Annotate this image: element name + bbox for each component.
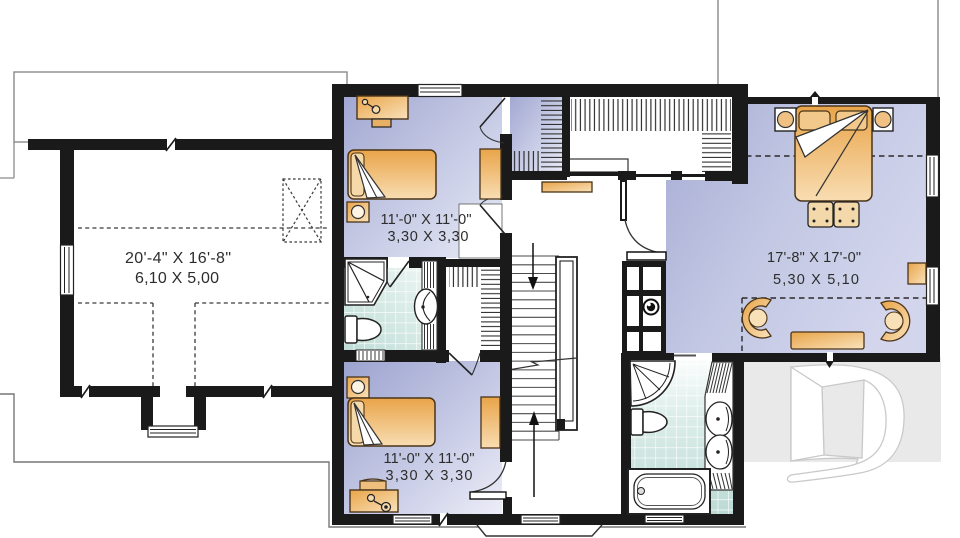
svg-text:6,10 X 5,00: 6,10 X 5,00: [135, 270, 219, 287]
svg-text:5,30 X 5,10: 5,30 X 5,10: [773, 272, 859, 288]
svg-text:3,30 X 3,30: 3,30 X 3,30: [388, 229, 469, 245]
svg-text:3,30 X 3,30: 3,30 X 3,30: [386, 468, 473, 484]
svg-text:11'-0" X 11'-0": 11'-0" X 11'-0": [381, 212, 472, 228]
svg-text:11'-0" X 11'-0": 11'-0" X 11'-0": [384, 451, 475, 467]
svg-text:17'-8" X 17'-0": 17'-8" X 17'-0": [767, 250, 861, 266]
svg-text:20'-4" X 16'-8": 20'-4" X 16'-8": [125, 250, 231, 267]
